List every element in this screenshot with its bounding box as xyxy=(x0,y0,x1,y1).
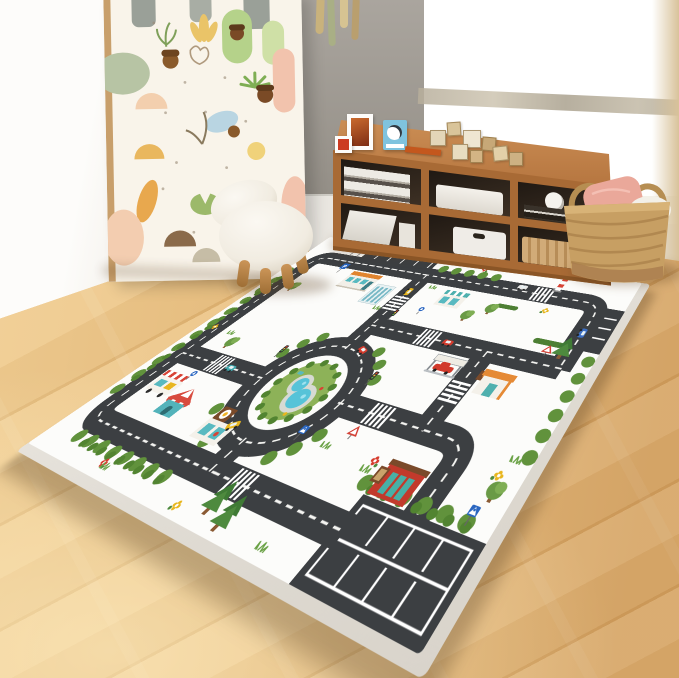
chime-strip xyxy=(340,0,348,28)
stool-leg xyxy=(260,268,271,294)
cubby-papers xyxy=(341,203,421,249)
toy-block xyxy=(452,144,468,160)
clock-card xyxy=(383,120,407,150)
wind-chime xyxy=(316,0,368,52)
toy-block xyxy=(509,152,523,166)
toy-block xyxy=(492,145,508,161)
cubby-white-bin xyxy=(429,170,509,216)
woven-basket xyxy=(556,164,679,288)
chime-strip xyxy=(315,0,324,34)
plush-stool xyxy=(196,166,336,298)
mini-frame xyxy=(335,136,352,153)
stool-leg xyxy=(280,263,294,289)
toy-block xyxy=(447,122,462,137)
chime-strip xyxy=(327,0,336,46)
toy-block xyxy=(470,150,483,163)
cubby-binders xyxy=(341,159,421,205)
toy-block xyxy=(430,130,446,146)
nursery-photo: P xyxy=(0,0,679,678)
chime-strip xyxy=(351,0,359,40)
stool-seat xyxy=(219,201,313,271)
cubby-white-box xyxy=(429,214,509,260)
